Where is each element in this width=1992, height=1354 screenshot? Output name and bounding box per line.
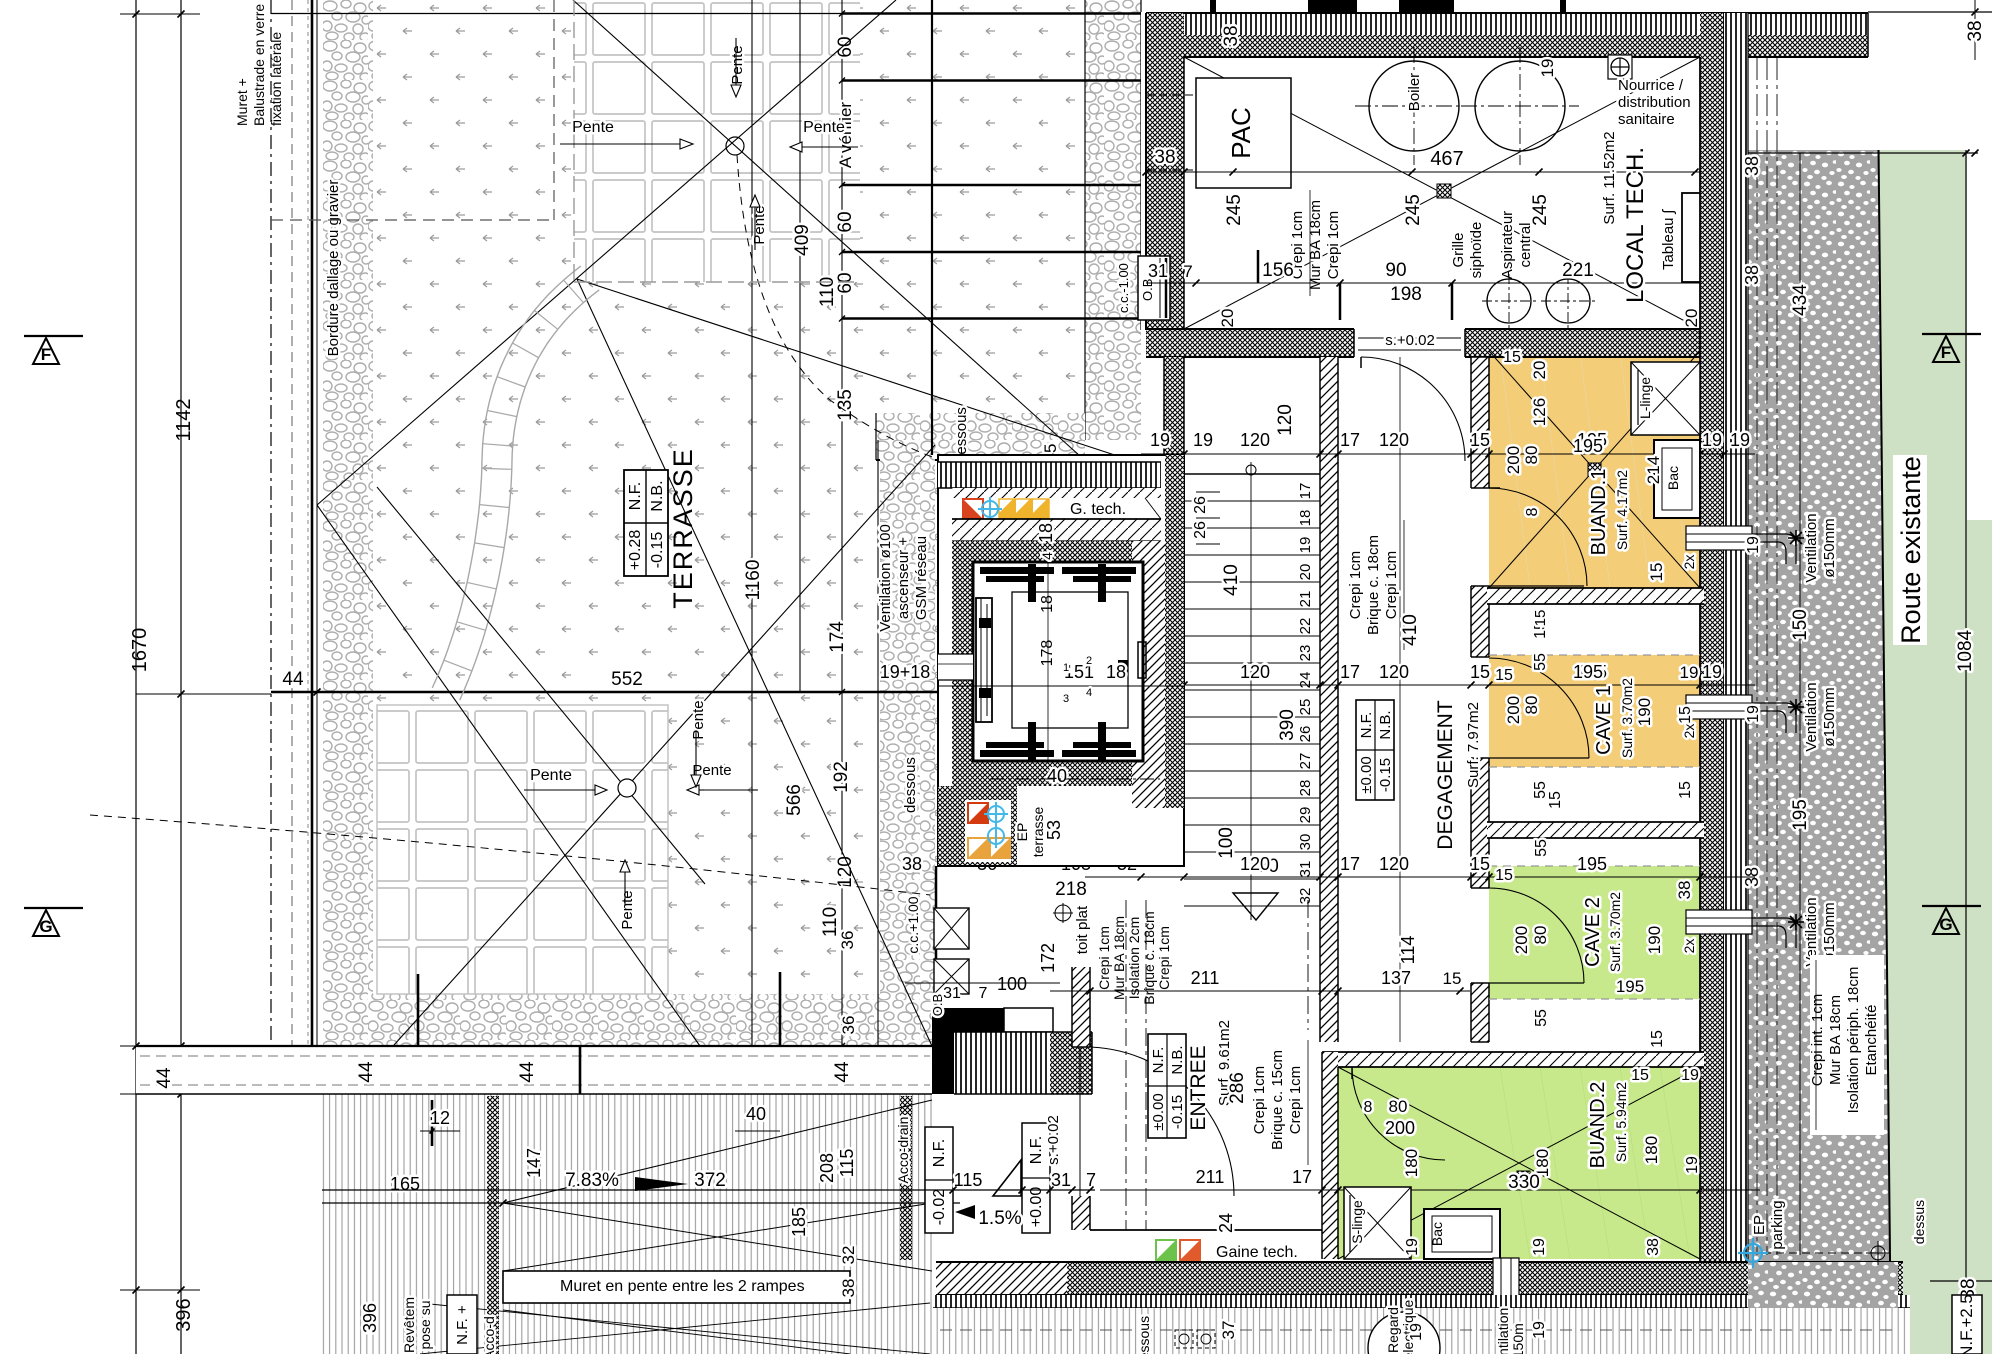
svg-text:Mur BA 18cm: Mur BA 18cm — [1111, 916, 1127, 1000]
svg-text:38: 38 — [1675, 881, 1694, 900]
svg-text:Bac: Bac — [1429, 1222, 1445, 1246]
svg-text:44: 44 — [517, 1061, 538, 1083]
svg-text:120: 120 — [1275, 404, 1296, 436]
svg-text:90: 90 — [1385, 260, 1406, 281]
svg-text:38: 38 — [1221, 25, 1242, 46]
svg-text:15: 15 — [1532, 610, 1549, 627]
svg-text:Route existante: Route existante — [1896, 456, 1926, 644]
svg-text:566: 566 — [784, 784, 805, 816]
svg-text:32: 32 — [839, 1246, 858, 1265]
svg-text:120: 120 — [1240, 854, 1270, 874]
svg-text:Crepi int. 1cm: Crepi int. 1cm — [1809, 994, 1826, 1087]
svg-text:15: 15 — [1470, 854, 1490, 874]
svg-text:ENTREE: ENTREE — [1187, 1045, 1210, 1130]
svg-text:200: 200 — [1504, 446, 1523, 474]
svg-text:Boiler: Boiler — [1406, 73, 1423, 111]
svg-text:7: 7 — [1183, 262, 1192, 281]
svg-text:1: 1 — [1063, 662, 1069, 674]
svg-text:208: 208 — [817, 1153, 837, 1183]
svg-text:38: 38 — [1965, 20, 1986, 41]
svg-text:Regard: Regard — [1385, 1307, 1401, 1353]
svg-text:120: 120 — [835, 856, 856, 888]
svg-text:3: 3 — [1063, 693, 1069, 705]
svg-text:+0.28: +0.28 — [627, 530, 644, 571]
svg-text:245: 245 — [1403, 194, 1424, 226]
svg-text:4: 4 — [1086, 687, 1092, 699]
svg-text:286: 286 — [1227, 1072, 1248, 1104]
svg-text:N.B.: N.B. — [1377, 710, 1394, 739]
svg-text:396: 396 — [360, 1303, 380, 1333]
svg-text:20: 20 — [1218, 309, 1237, 328]
svg-text:410: 410 — [1221, 564, 1242, 596]
svg-text:Crepi 1cm: Crepi 1cm — [1383, 551, 1400, 619]
svg-text:156: 156 — [1262, 260, 1294, 281]
svg-text:218: 218 — [1055, 879, 1087, 900]
svg-text:Pente: Pente — [729, 45, 746, 84]
svg-text:120: 120 — [1379, 430, 1409, 450]
svg-text:31: 31 — [943, 985, 961, 1002]
svg-text:F: F — [1941, 343, 1951, 362]
svg-text:EP: EP — [1014, 823, 1030, 842]
svg-text:Crepi 1cm: Crepi 1cm — [1287, 1066, 1304, 1134]
svg-text:Isolation périph. 18cm: Isolation périph. 18cm — [1845, 967, 1862, 1114]
svg-text:N.F.: N.F. — [627, 482, 644, 510]
svg-text:N.F.: N.F. — [1358, 712, 1375, 739]
svg-text:15: 15 — [1495, 867, 1513, 884]
svg-text:15: 15 — [1649, 1030, 1666, 1048]
svg-text:180: 180 — [1402, 1149, 1421, 1177]
svg-text:EP: EP — [1751, 1215, 1768, 1235]
svg-text:Ventilation: Ventilation — [1803, 513, 1820, 582]
svg-text:c.c.+1.00: c.c.+1.00 — [905, 896, 921, 953]
svg-text:23: 23 — [1297, 645, 1314, 662]
svg-text:409: 409 — [792, 224, 813, 256]
svg-text:N.B.: N.B. — [1169, 1045, 1186, 1074]
svg-text:S-linge: S-linge — [1349, 1200, 1365, 1244]
svg-text:Surf. 4.17m2: Surf. 4.17m2 — [1614, 470, 1630, 550]
svg-text:19: 19 — [1730, 430, 1750, 450]
svg-text:120: 120 — [1240, 430, 1270, 450]
svg-text:17: 17 — [1340, 430, 1360, 450]
svg-text:18: 18 — [1039, 595, 1056, 613]
svg-text:36: 36 — [838, 931, 857, 950]
svg-text:Muret +: Muret + — [234, 78, 250, 126]
svg-text:19: 19 — [1681, 1067, 1699, 1084]
svg-text:parking: parking — [1769, 1200, 1786, 1249]
svg-text:60: 60 — [835, 211, 856, 232]
svg-text:Muret en pente entre les: Muret en pente entre les 2 rampes — [560, 1278, 805, 1295]
svg-text:198: 198 — [1390, 284, 1422, 305]
svg-text:26: 26 — [1297, 726, 1314, 743]
svg-text:G: G — [39, 917, 52, 936]
svg-text:Balustrade en verre: Balustrade en verre — [251, 4, 267, 126]
svg-text:15: 15 — [1677, 706, 1694, 724]
svg-text:195: 195 — [1790, 799, 1811, 831]
svg-text:115: 115 — [954, 1170, 983, 1190]
svg-text:8: 8 — [1524, 507, 1541, 516]
svg-text:N.F.: N.F. — [1028, 1136, 1045, 1164]
svg-text:26: 26 — [1192, 496, 1209, 514]
svg-text:-0.15: -0.15 — [1169, 1095, 1186, 1129]
svg-text:126: 126 — [1530, 398, 1549, 426]
svg-text:±0.00: ±0.00 — [1358, 756, 1375, 793]
svg-text:32: 32 — [1297, 888, 1314, 905]
svg-text:Bac: Bac — [1665, 466, 1681, 490]
svg-text:372: 372 — [694, 1170, 726, 1191]
svg-text:147: 147 — [524, 1148, 544, 1178]
svg-text:1142: 1142 — [173, 398, 195, 441]
svg-text:100: 100 — [997, 974, 1027, 994]
svg-text:15: 15 — [1631, 1067, 1649, 1084]
svg-text:19: 19 — [1745, 536, 1762, 554]
svg-text:TERRASSE: TERRASSE — [668, 447, 698, 609]
svg-text:19+18: 19+18 — [880, 662, 931, 682]
svg-text:c.c.-1.00: c.c.-1.00 — [1116, 263, 1131, 313]
svg-text:G. tech.: G. tech. — [1070, 501, 1126, 518]
svg-text:19: 19 — [1702, 662, 1722, 682]
svg-text:17: 17 — [1340, 662, 1360, 682]
svg-text:Surf. 11.52m2: Surf. 11.52m2 — [1601, 131, 1618, 224]
svg-text:Nourrice /: Nourrice / — [1618, 77, 1684, 94]
svg-text:434: 434 — [1790, 284, 1811, 316]
svg-text:dessous: dessous — [902, 757, 919, 813]
svg-text:80: 80 — [1522, 696, 1541, 715]
svg-text:467: 467 — [1430, 148, 1463, 170]
svg-text:27: 27 — [1297, 753, 1314, 770]
svg-text:44: 44 — [832, 1061, 853, 1083]
svg-text:195: 195 — [1573, 436, 1603, 456]
svg-text:80: 80 — [1522, 446, 1541, 465]
svg-text:8: 8 — [1364, 1099, 1373, 1116]
svg-text:1.5%: 1.5% — [978, 1208, 1021, 1229]
svg-text:Pente: Pente — [530, 767, 572, 784]
svg-text:80: 80 — [1531, 926, 1550, 945]
svg-text:2: 2 — [1086, 655, 1092, 667]
svg-text:12: 12 — [430, 1108, 450, 1128]
svg-text:60: 60 — [835, 36, 856, 57]
svg-text:Crepi 1cm: Crepi 1cm — [1156, 926, 1172, 990]
svg-text:19: 19 — [1297, 537, 1314, 554]
svg-text:245: 245 — [1530, 194, 1551, 226]
svg-text:Crepi 1cm: Crepi 1cm — [1096, 926, 1112, 990]
svg-text:GSM réseau: GSM réseau — [913, 536, 930, 620]
svg-text:221: 221 — [1562, 260, 1594, 281]
svg-text:19: 19 — [1680, 663, 1699, 682]
svg-text:195: 195 — [1577, 854, 1607, 874]
svg-text:195: 195 — [1573, 662, 1603, 682]
svg-text:ø150mm: ø150mm — [1821, 518, 1838, 577]
svg-text:-0.15: -0.15 — [1377, 758, 1394, 792]
svg-text:Bordure dallage ou gravier: Bordure dallage ou gravier — [325, 180, 342, 357]
svg-text:2x: 2x — [1681, 939, 1697, 954]
svg-text:17: 17 — [1297, 483, 1314, 500]
svg-text:15: 15 — [1470, 430, 1490, 450]
svg-text:19: 19 — [1193, 430, 1213, 450]
svg-text:siphoïde: siphoïde — [1468, 222, 1485, 279]
svg-text:195: 195 — [1616, 977, 1644, 996]
svg-text:19: 19 — [1745, 705, 1762, 723]
svg-text:N.B.: N.B. — [649, 480, 666, 511]
svg-text:185: 185 — [789, 1207, 809, 1237]
svg-text:55: 55 — [1532, 653, 1549, 671]
svg-text:Pente: Pente — [690, 700, 707, 739]
svg-text:15: 15 — [1647, 563, 1666, 582]
svg-text:Surf. 3.70m2: Surf. 3.70m2 — [1607, 892, 1623, 972]
svg-text:19: 19 — [1150, 430, 1170, 450]
svg-text:38: 38 — [1154, 147, 1175, 168]
svg-text:36: 36 — [839, 1016, 858, 1035]
svg-text:19: 19 — [1404, 1238, 1421, 1256]
svg-text:Mur BA 18cm: Mur BA 18cm — [1827, 995, 1844, 1085]
svg-text:Isolation 2cm: Isolation 2cm — [1126, 917, 1142, 999]
svg-text:dessus: dessus — [1911, 1200, 1927, 1244]
svg-text:N.F.: N.F. — [1150, 1047, 1167, 1074]
svg-text:2x: 2x — [1681, 555, 1697, 570]
svg-text:15: 15 — [1470, 662, 1490, 682]
svg-text:Surf. 5.94m2: Surf. 5.94m2 — [1613, 1082, 1629, 1162]
svg-text:165: 165 — [390, 1174, 420, 1194]
svg-text:55: 55 — [1533, 839, 1550, 857]
svg-text:dessous: dessous — [1136, 1316, 1152, 1354]
svg-text:120: 120 — [1379, 854, 1409, 874]
svg-text:PAC: PAC — [1226, 107, 1256, 159]
svg-text:20: 20 — [1297, 564, 1314, 581]
svg-text:115: 115 — [837, 1149, 857, 1178]
svg-text:410: 410 — [1400, 614, 1421, 646]
svg-text:53: 53 — [1044, 820, 1064, 840]
svg-text:15: 15 — [1503, 349, 1521, 366]
svg-text:Pente: Pente — [619, 890, 636, 929]
svg-text:N.F. +: N.F. + — [454, 1305, 471, 1345]
svg-text:Pente: Pente — [751, 205, 768, 244]
svg-text:Ventilation ø100: Ventilation ø100 — [877, 524, 894, 632]
svg-text:15: 15 — [1495, 667, 1513, 684]
svg-text:137: 137 — [1381, 968, 1411, 988]
svg-text:29: 29 — [1297, 807, 1314, 824]
svg-text:180: 180 — [1642, 1136, 1661, 1164]
svg-text:114: 114 — [1398, 936, 1418, 965]
svg-text:19: 19 — [1531, 1238, 1548, 1256]
svg-text:55: 55 — [1533, 1009, 1550, 1027]
svg-text:172: 172 — [1038, 943, 1058, 973]
svg-text:ø150mm: ø150mm — [1821, 902, 1838, 961]
svg-text:7: 7 — [1086, 1170, 1096, 1190]
svg-text:120: 120 — [1379, 662, 1409, 682]
svg-text:s.+0.02: s.+0.02 — [1385, 332, 1435, 349]
svg-text:4: 4 — [1039, 552, 1055, 560]
svg-text:ascenseur +: ascenseur + — [895, 537, 912, 619]
svg-text:44: 44 — [356, 1061, 377, 1083]
svg-text:+0.00: +0.00 — [1028, 1187, 1045, 1228]
svg-text:192: 192 — [831, 761, 852, 793]
svg-text:390: 390 — [1277, 709, 1298, 741]
svg-text:Brique c. 15cm: Brique c. 15cm — [1269, 1050, 1286, 1150]
svg-text:38: 38 — [902, 854, 922, 874]
svg-text:toit plat: toit plat — [1074, 905, 1091, 954]
svg-text:28: 28 — [1297, 780, 1314, 797]
svg-text:ø150m: ø150m — [1510, 1323, 1526, 1354]
svg-text:Crepi 1cm: Crepi 1cm — [1325, 211, 1342, 279]
svg-text:Crepi 1cm: Crepi 1cm — [1347, 551, 1364, 619]
svg-text:pose su: pose su — [417, 1300, 433, 1349]
svg-text:178: 178 — [1039, 640, 1056, 667]
svg-text:F: F — [41, 345, 51, 364]
svg-text:17: 17 — [1340, 854, 1360, 874]
svg-text:38: 38 — [1645, 1238, 1662, 1256]
svg-text:Pente: Pente — [572, 119, 614, 136]
svg-text:Acco-drain: Acco-drain — [895, 1117, 911, 1184]
svg-text:190: 190 — [1635, 698, 1654, 726]
svg-text:15: 15 — [1677, 781, 1694, 799]
svg-text:±0.00: ±0.00 — [1150, 1093, 1167, 1130]
svg-text:38: 38 — [1742, 156, 1762, 176]
svg-text:1160: 1160 — [743, 560, 764, 601]
svg-text:G: G — [1939, 915, 1952, 934]
svg-text:BUAND.2: BUAND.2 — [1587, 1082, 1609, 1169]
svg-text:Mur BA 18cm: Mur BA 18cm — [1307, 200, 1324, 290]
svg-text:fixation latérale: fixation latérale — [268, 32, 284, 126]
svg-text:330: 330 — [1508, 1172, 1540, 1193]
svg-text:44: 44 — [282, 669, 304, 690]
svg-text:DEGAGEMENT: DEGAGEMENT — [1434, 700, 1457, 850]
svg-text:19: 19 — [1538, 59, 1557, 78]
svg-text:2x: 2x — [1681, 724, 1697, 739]
svg-text:ø150mm: ø150mm — [1821, 687, 1838, 746]
svg-text:214: 214 — [1644, 456, 1663, 484]
svg-text:1670: 1670 — [129, 628, 151, 673]
svg-text:245: 245 — [1224, 194, 1245, 226]
svg-text:19: 19 — [1684, 1156, 1701, 1174]
svg-text:Etanchéité: Etanchéité — [1863, 1005, 1880, 1076]
svg-text:30: 30 — [1297, 834, 1314, 851]
svg-text:sanitaire: sanitaire — [1618, 111, 1675, 128]
svg-text:20: 20 — [1682, 309, 1701, 328]
svg-text:38: 38 — [839, 1279, 858, 1298]
svg-text:25: 25 — [1297, 699, 1314, 716]
svg-text:18: 18 — [1106, 662, 1126, 682]
svg-text:Crepi 1cm: Crepi 1cm — [1251, 1066, 1268, 1134]
svg-text:BUAND.1: BUAND.1 — [1588, 469, 1610, 556]
svg-text:200: 200 — [1512, 926, 1531, 954]
svg-text:200: 200 — [1504, 696, 1523, 724]
svg-text:15: 15 — [1443, 969, 1462, 988]
svg-text:central: central — [1517, 222, 1534, 267]
svg-text:Ventilation: Ventilation — [1495, 1308, 1511, 1354]
svg-text:Aspirateur: Aspirateur — [1499, 211, 1516, 279]
svg-text:26: 26 — [1192, 521, 1209, 539]
svg-text:37: 37 — [1219, 1321, 1238, 1340]
svg-text:L-linge: L-linge — [1637, 377, 1653, 419]
svg-text:s.+0.02: s.+0.02 — [1045, 1115, 1062, 1165]
svg-text:44: 44 — [154, 1067, 175, 1089]
svg-text:Tableau ʃ: Tableau ʃ — [1660, 208, 1677, 270]
svg-text:396: 396 — [173, 1298, 195, 1331]
svg-text:40: 40 — [1047, 766, 1067, 786]
svg-text:24: 24 — [1216, 1213, 1236, 1233]
svg-text:60: 60 — [835, 272, 856, 293]
svg-text:Ventilation: Ventilation — [1803, 682, 1820, 751]
svg-text:19: 19 — [1531, 1321, 1548, 1339]
svg-text:7: 7 — [979, 985, 988, 1002]
svg-text:17: 17 — [1292, 1167, 1312, 1187]
svg-text:N.F.: N.F. — [931, 1139, 948, 1167]
svg-text:LOCAL TECH.: LOCAL TECH. — [1622, 147, 1649, 303]
svg-text:18: 18 — [1297, 510, 1314, 527]
svg-text:18: 18 — [1036, 523, 1056, 543]
svg-text:Acco-d: Acco-d — [481, 1316, 497, 1354]
svg-text:7.83%: 7.83% — [565, 1170, 619, 1191]
svg-text:100: 100 — [1216, 827, 1237, 859]
svg-text:31: 31 — [1148, 261, 1168, 281]
svg-text:20: 20 — [1530, 361, 1549, 380]
svg-text:211: 211 — [1196, 1167, 1225, 1187]
svg-text:19: 19 — [1408, 1323, 1425, 1341]
svg-text:24: 24 — [1297, 672, 1314, 689]
svg-text:40: 40 — [746, 1104, 766, 1124]
svg-text:38: 38 — [1742, 265, 1762, 285]
svg-text:Surf. 3.70m2: Surf. 3.70m2 — [1619, 678, 1635, 758]
svg-text:552: 552 — [611, 669, 643, 690]
svg-text:Gaine tech.: Gaine tech. — [1216, 1244, 1298, 1261]
svg-text:120: 120 — [1240, 662, 1270, 682]
svg-text:31: 31 — [1297, 861, 1314, 878]
svg-text:190: 190 — [1645, 926, 1664, 954]
svg-text:-0.15: -0.15 — [649, 532, 666, 569]
svg-text:Surf. 7.97m2: Surf. 7.97m2 — [1465, 702, 1482, 788]
svg-text:Revêtem: Revêtem — [401, 1297, 417, 1353]
svg-text:80: 80 — [1389, 1097, 1408, 1116]
svg-text:CAVE 2: CAVE 2 — [1582, 897, 1604, 967]
svg-text:distribution: distribution — [1618, 94, 1691, 111]
svg-text:21: 21 — [1297, 591, 1314, 608]
svg-text:CAVE 1: CAVE 1 — [1593, 685, 1615, 755]
svg-text:Pente: Pente — [803, 119, 845, 136]
svg-text:174: 174 — [827, 621, 848, 653]
svg-text:150: 150 — [1790, 609, 1811, 641]
svg-text:200: 200 — [1385, 1118, 1415, 1138]
svg-text:211: 211 — [1191, 968, 1220, 988]
svg-text:Grille: Grille — [1450, 232, 1467, 267]
svg-text:19: 19 — [1702, 430, 1722, 450]
svg-text:1084: 1084 — [1955, 629, 1976, 672]
svg-text:N.F.+2.5: N.F.+2.5 — [1957, 1294, 1976, 1354]
svg-text:Brique c. 18cm: Brique c. 18cm — [1365, 535, 1382, 635]
svg-text:22: 22 — [1297, 618, 1314, 635]
svg-text:15: 15 — [1547, 791, 1564, 809]
svg-text:-0.02: -0.02 — [931, 1189, 948, 1226]
